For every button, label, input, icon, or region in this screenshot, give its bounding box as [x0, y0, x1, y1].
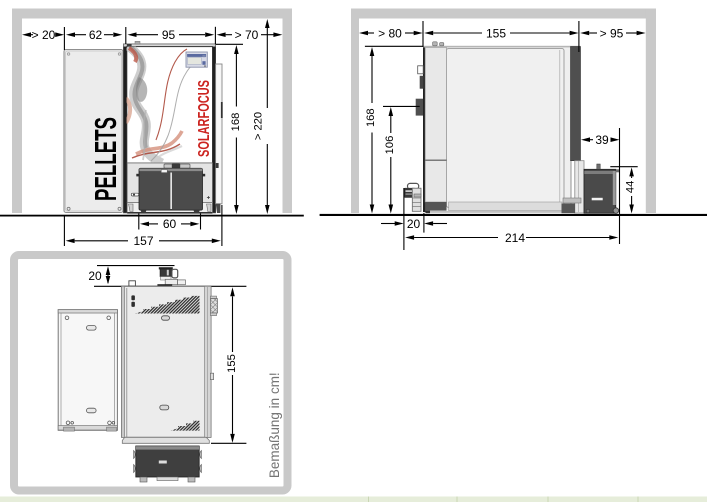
svg-text:155: 155 [226, 354, 238, 373]
svg-text:168: 168 [365, 108, 377, 127]
svg-text:39: 39 [595, 133, 609, 147]
svg-text:> 220: > 220 [252, 112, 264, 140]
svg-text:Bemaßung in cm!: Bemaßung in cm! [267, 372, 282, 478]
svg-text:44: 44 [625, 181, 637, 193]
svg-text:155: 155 [486, 26, 506, 40]
svg-text:SOLARFOCUS: SOLARFOCUS [196, 80, 213, 157]
svg-text:> 80: > 80 [378, 26, 402, 40]
svg-text:60: 60 [163, 217, 177, 231]
svg-text:95: 95 [162, 28, 176, 42]
svg-text:157: 157 [133, 234, 153, 248]
svg-text:106: 106 [384, 136, 396, 155]
svg-text:PELLETS: PELLETS [88, 117, 123, 201]
svg-text:20: 20 [407, 217, 421, 231]
svg-text:168: 168 [230, 113, 242, 132]
svg-text:> 70: > 70 [235, 28, 259, 42]
svg-text:20: 20 [88, 269, 102, 283]
svg-text:> 95: > 95 [600, 26, 624, 40]
svg-text:62: 62 [89, 28, 103, 42]
svg-text:> 20: > 20 [32, 28, 56, 42]
svg-text:214: 214 [505, 231, 525, 245]
